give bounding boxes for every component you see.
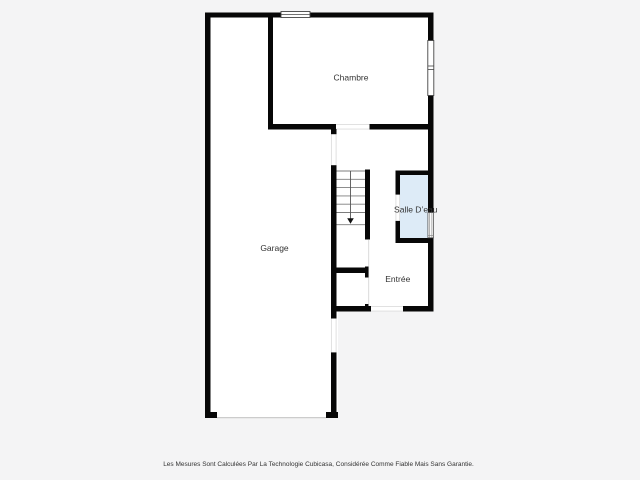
svg-text:Chambre: Chambre: [334, 72, 369, 82]
svg-text:Garage: Garage: [260, 243, 289, 253]
svg-text:Les Mesures Sont Calculées Par: Les Mesures Sont Calculées Par La Techno…: [163, 461, 474, 468]
svg-text:Entrée: Entrée: [385, 274, 410, 284]
svg-text:Salle D’eau: Salle D’eau: [394, 204, 438, 214]
